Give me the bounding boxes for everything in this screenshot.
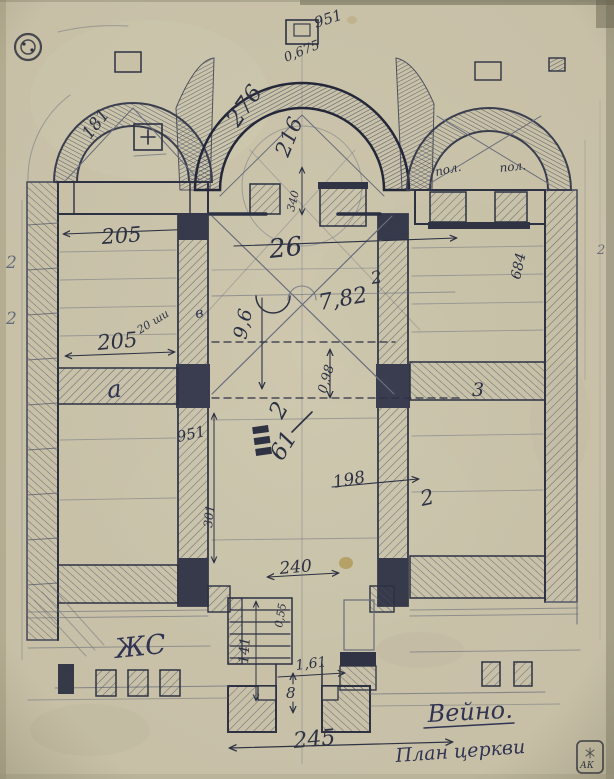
mark-2-left-margin-lower: 2 bbox=[5, 309, 17, 329]
right-apse-niche bbox=[475, 62, 501, 80]
small-block-top-right bbox=[549, 58, 565, 71]
dim-245-porch: 245 bbox=[291, 725, 336, 754]
dim-8-entrance: 8 bbox=[286, 684, 296, 702]
nave-left-wall bbox=[176, 214, 210, 606]
apse-pier bbox=[430, 192, 466, 222]
mark-2-left-margin-upper: 2 bbox=[5, 253, 17, 273]
left-apse-niche bbox=[115, 52, 141, 72]
dim-141-porch: 141 bbox=[236, 636, 254, 664]
ink-stain bbox=[339, 557, 353, 569]
caption-veyno: Вейно. bbox=[426, 696, 514, 728]
dim-301-vertical: 301 bbox=[201, 504, 217, 528]
dim-26-crossing: 26 bbox=[267, 232, 304, 265]
church-floor-plan-drawing: 9510,675276216181205пол.пол.267,8229,60,… bbox=[0, 0, 614, 779]
apse-pier bbox=[250, 184, 280, 214]
nave-right-wall bbox=[376, 214, 410, 606]
left-bottom-wall bbox=[58, 565, 178, 603]
stamp-ak-letters: АК bbox=[579, 761, 595, 771]
scanned-drawing-sheet: 9510,675276216181205пол.пол.267,8229,60,… bbox=[0, 0, 614, 779]
dim-240-porch: 240 bbox=[278, 556, 313, 579]
right-bottom-wall bbox=[410, 556, 545, 598]
label-pol-right: пол. bbox=[499, 158, 527, 175]
dim-205-left-apse: 205 bbox=[100, 222, 143, 249]
monogram-zhs: ЖС bbox=[112, 629, 168, 665]
apse-pier bbox=[495, 192, 527, 222]
mark-2-right-margin: 2 bbox=[596, 243, 605, 258]
label-a-left-wall: а bbox=[106, 375, 123, 404]
apse-pier bbox=[320, 184, 366, 226]
dim-205-left-bay: 205 bbox=[95, 328, 138, 355]
label-3-right-wall: 3 bbox=[472, 379, 484, 401]
